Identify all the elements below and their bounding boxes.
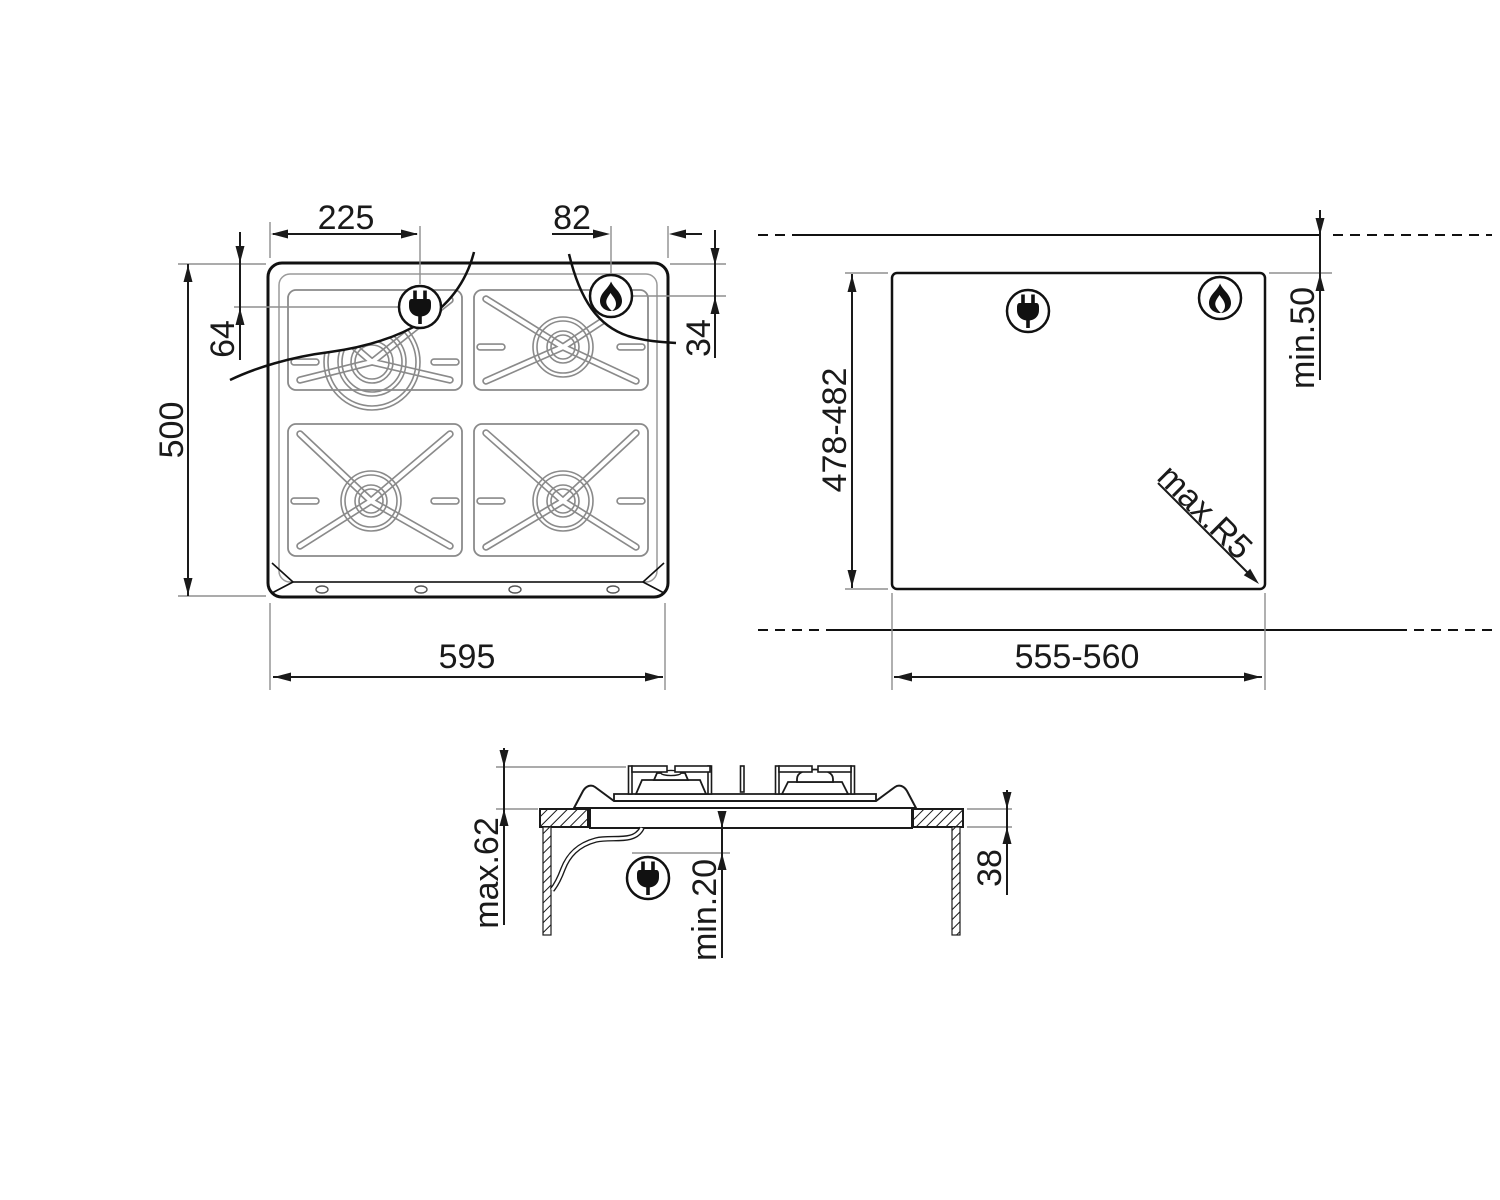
dimension-label-rear-clearance: min.50 <box>1284 287 1322 389</box>
hob-platform <box>614 794 876 801</box>
power-plug-icon <box>627 857 669 899</box>
hob-side-view: max.62 min.20 38 <box>468 748 1012 961</box>
dimension-lines <box>504 748 1007 958</box>
burner-section-left <box>629 766 712 794</box>
dimension-label-total-height: max.62 <box>468 817 506 929</box>
hob-top-view: 225 82 64 34 500 595 <box>153 199 726 690</box>
cabinet-panel-right <box>952 827 960 935</box>
dimension-label-gas-from-top: 34 <box>680 319 718 357</box>
dimension-label-cutout-depth: 478-482 <box>816 368 854 493</box>
worktop-cutout-view: 478-482 min.50 max.R5 555-560 <box>758 210 1492 690</box>
power-plug-icon <box>1007 290 1049 332</box>
technical-drawing-page: 225 82 64 34 500 595 <box>0 0 1500 1200</box>
dimension-label-gas-from-right: 82 <box>553 199 591 237</box>
centre-support <box>741 766 745 792</box>
worktop-section-left <box>540 809 588 827</box>
dimension-label-hob-depth: 500 <box>153 402 191 459</box>
dimension-label-clearance-below: min.20 <box>686 859 724 961</box>
dimension-label-hob-width: 595 <box>439 638 496 676</box>
hob-tray <box>590 807 912 828</box>
power-plug-icon <box>399 286 441 328</box>
diagram-canvas: 225 82 64 34 500 595 <box>0 0 1500 1200</box>
burner-section-right <box>776 766 855 794</box>
dimension-label-cutout-width: 555-560 <box>1015 638 1140 676</box>
gas-flame-icon <box>590 275 632 317</box>
dimension-label-worktop-thickness: 38 <box>971 849 1009 887</box>
dimension-label-plug-from-left: 225 <box>318 199 375 237</box>
hob-profile <box>574 786 916 808</box>
gas-flame-icon <box>1199 277 1241 319</box>
dimension-label-plug-from-top: 64 <box>204 320 242 358</box>
cabinet-panel-left <box>543 827 551 935</box>
worktop-section-right <box>913 809 963 827</box>
